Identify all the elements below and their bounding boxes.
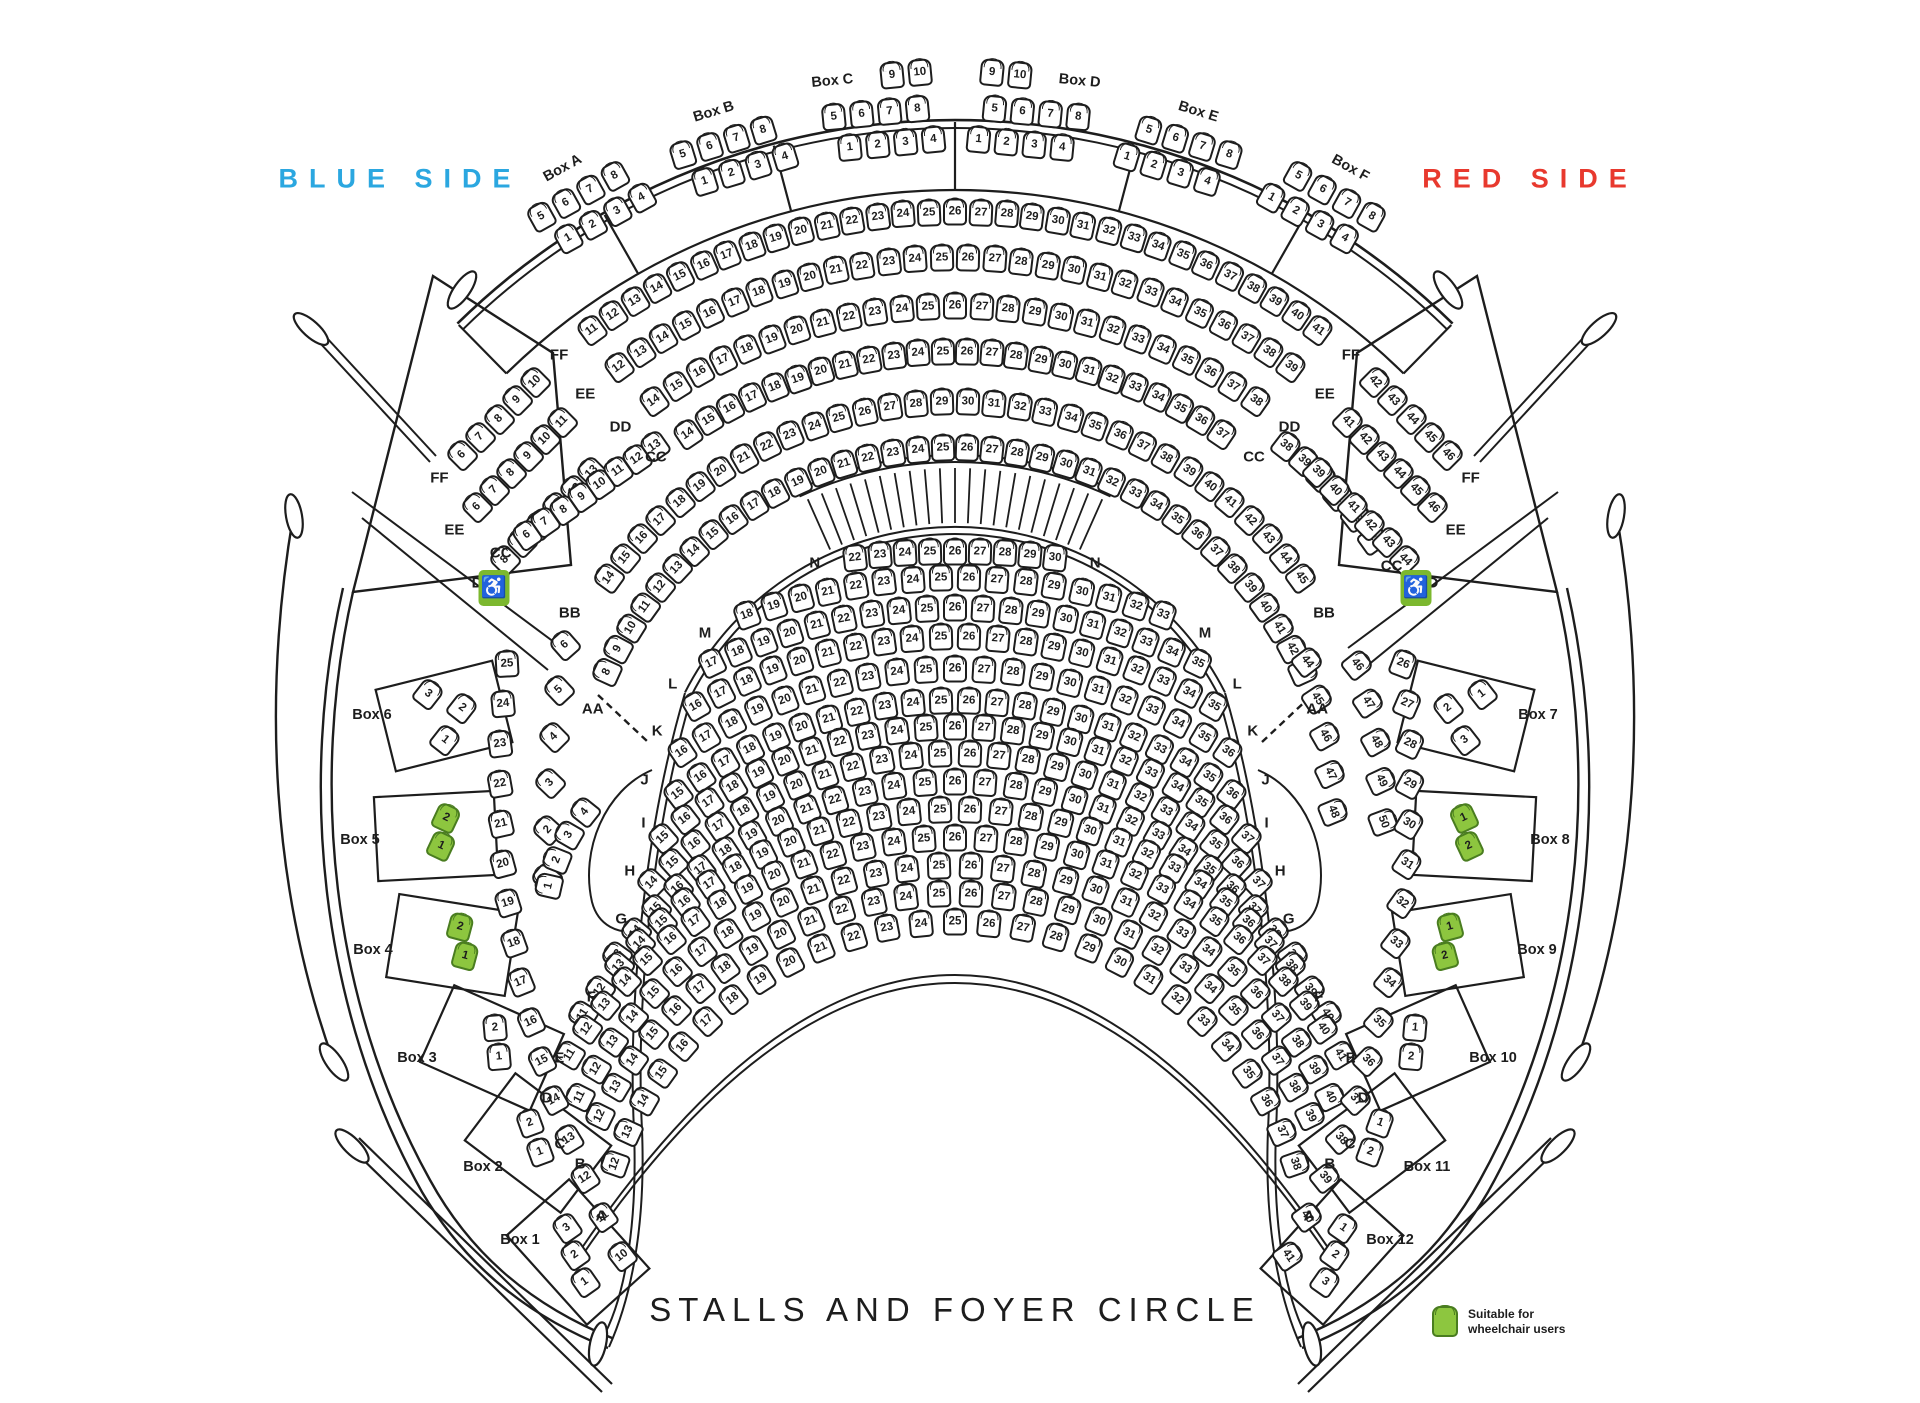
row-label: C	[1345, 1135, 1356, 1152]
seat-N-22[interactable]: 22	[841, 543, 868, 573]
row-label: J	[640, 771, 648, 788]
seat-E-25[interactable]: 25	[927, 796, 952, 824]
row-label: CC	[490, 545, 512, 562]
seat-A-25[interactable]: 25	[943, 909, 967, 936]
seat-Box3-2[interactable]: 2	[482, 1014, 508, 1043]
seat-FF-29[interactable]: 29	[1019, 202, 1046, 232]
seat-N-27[interactable]: 27	[968, 539, 993, 567]
row-label: EE	[444, 521, 464, 538]
door-marker	[1557, 1039, 1595, 1084]
row-label: I	[641, 814, 645, 831]
wall-line	[598, 695, 648, 742]
row-label: EE	[1446, 521, 1466, 538]
seat-BoxD-4[interactable]: 4	[1049, 133, 1075, 162]
box-label: Box C	[811, 71, 854, 91]
row-label: FF	[1461, 469, 1479, 486]
row-label: FF	[1342, 347, 1360, 364]
row-label: C	[554, 1135, 565, 1152]
box-label: Box B	[691, 98, 736, 126]
seat-G-27[interactable]: 27	[986, 742, 1013, 771]
seat-EE-29[interactable]: 29	[1034, 250, 1062, 281]
seat-H-28[interactable]: 28	[999, 716, 1026, 746]
row-label: N	[1090, 554, 1101, 571]
row-label: H	[1275, 862, 1286, 879]
wall-line	[1019, 476, 1030, 530]
seat-I-25[interactable]: 25	[928, 687, 953, 715]
red-side-label: RED SIDE	[1422, 164, 1638, 195]
row-label: J	[1261, 771, 1269, 788]
row-label: BB	[559, 605, 581, 622]
wall-line	[993, 471, 1000, 526]
seat-F-25[interactable]: 25	[912, 769, 938, 798]
seat-F-27[interactable]: 27	[972, 769, 998, 798]
seat-DD-23[interactable]: 23	[861, 297, 889, 327]
seat-D-27[interactable]: 27	[973, 825, 999, 854]
wall-line	[1006, 473, 1015, 527]
wheelchair-icon: ♿	[1401, 570, 1432, 606]
seat-G-25[interactable]: 25	[928, 740, 953, 768]
seat-CC-25[interactable]: 25	[930, 338, 955, 366]
seat-K-22[interactable]: 22	[841, 631, 870, 662]
seat-BoxE-1[interactable]: 1	[1112, 141, 1143, 174]
seat-BB-27[interactable]: 27	[876, 392, 904, 422]
row-label: I	[1264, 814, 1268, 831]
seat-G-24[interactable]: 24	[898, 742, 925, 771]
row-label: D	[542, 1090, 553, 1107]
row-label: FF	[550, 347, 568, 364]
seat-BoxD-6[interactable]: 6	[1009, 97, 1035, 126]
seat-B-26[interactable]: 26	[959, 880, 984, 908]
seat-DD-26[interactable]: 26	[943, 293, 967, 320]
box-box-c[interactable]: Box C91056781234	[795, 54, 957, 180]
seat-slips-24[interactable]: 24	[490, 690, 516, 719]
row-label: Box 2	[463, 1159, 503, 1175]
seat-BoxB-3[interactable]: 3	[743, 149, 774, 182]
seat-AA-28[interactable]: 28	[1003, 438, 1031, 469]
row-label: E	[554, 1049, 564, 1066]
seat-EE-22[interactable]: 22	[848, 250, 876, 281]
seat-BoxB-8[interactable]: 8	[748, 114, 779, 147]
seat-N-26[interactable]: 26	[943, 539, 967, 566]
wall-line	[910, 471, 917, 526]
seat-M-29[interactable]: 29	[1040, 571, 1068, 602]
row-label: CC	[1381, 558, 1403, 575]
seat-EE-26[interactable]: 26	[956, 244, 981, 272]
row-label: Box 3	[397, 1050, 437, 1066]
wall-line	[981, 469, 986, 524]
seat-EE-23[interactable]: 23	[875, 247, 902, 277]
seat-DD-27[interactable]: 27	[969, 293, 994, 321]
wall-line	[968, 468, 970, 523]
row-label: G	[1283, 911, 1295, 928]
row-label: M	[1199, 624, 1212, 641]
seat-M-27[interactable]: 27	[985, 565, 1011, 594]
seat-D-29[interactable]: 29	[1032, 832, 1061, 863]
seat-BoxC-10[interactable]: 10	[907, 58, 933, 87]
seat-I-27[interactable]: 27	[984, 688, 1010, 717]
seat-F-28[interactable]: 28	[1002, 771, 1030, 801]
seat-Box10-2[interactable]: 2	[1398, 1043, 1424, 1072]
seat-Box3-1[interactable]: 1	[486, 1043, 512, 1072]
row-label: Box 6	[352, 707, 392, 723]
row-label: FF	[430, 469, 448, 486]
seat-G-26[interactable]: 26	[957, 740, 982, 768]
seat-AA-26[interactable]: 26	[955, 434, 980, 462]
seat-BoxC-5[interactable]: 5	[821, 102, 847, 131]
row-label: F	[587, 989, 596, 1006]
seat-BoxC-9[interactable]: 9	[879, 61, 905, 90]
seat-H-25[interactable]: 25	[913, 714, 939, 743]
door-marker	[1604, 493, 1627, 539]
seat-C-27[interactable]: 27	[989, 854, 1016, 884]
seat-FF-22[interactable]: 22	[838, 205, 866, 236]
row-label: B	[575, 1156, 586, 1173]
seat-BoxD-9[interactable]: 9	[979, 58, 1005, 87]
row-label: CC	[645, 449, 667, 466]
seat-DD-28[interactable]: 28	[995, 294, 1022, 323]
seat-AA-23[interactable]: 23	[879, 438, 907, 469]
seat-BoxE-8[interactable]: 8	[1214, 138, 1245, 171]
seat-BoxD-8[interactable]: 8	[1065, 102, 1091, 131]
seat-FF-24[interactable]: 24	[890, 200, 916, 229]
wall-line	[850, 483, 866, 536]
seat-BoxC-1[interactable]: 1	[837, 133, 863, 162]
seat-EE-27[interactable]: 27	[982, 245, 1008, 274]
seat-J-27[interactable]: 27	[971, 656, 997, 684]
seat-BoxE-4[interactable]: 4	[1192, 165, 1223, 198]
seat-L-29[interactable]: 29	[1025, 599, 1053, 629]
seat-BoxC-4[interactable]: 4	[920, 125, 946, 154]
seat-L-28[interactable]: 28	[997, 596, 1024, 625]
seat-A-26[interactable]: 26	[976, 909, 1002, 938]
row-label: N	[809, 554, 820, 571]
seat-BoxD-2[interactable]: 2	[993, 128, 1019, 157]
seat-FF-30[interactable]: 30	[1044, 205, 1072, 236]
seat-C-25[interactable]: 25	[927, 852, 952, 880]
seat-BoxD-1[interactable]: 1	[965, 125, 991, 154]
seat-J-28[interactable]: 28	[999, 658, 1026, 688]
seat-BoxC-6[interactable]: 6	[848, 100, 874, 129]
wall-line	[880, 476, 891, 530]
box-box-d[interactable]: Box D91056781234	[955, 54, 1117, 180]
legend-text: Suitable for wheelchair users	[1468, 1307, 1565, 1337]
row-label: K	[1247, 722, 1258, 739]
seat-L-27[interactable]: 27	[970, 595, 995, 623]
row-label: M	[699, 624, 712, 641]
seat-BoxC-2[interactable]: 2	[864, 130, 890, 159]
seat-FF-25[interactable]: 25	[917, 199, 942, 227]
wall-line	[940, 468, 942, 523]
seat-BoxC-3[interactable]: 3	[892, 128, 918, 157]
seat-BoxB-4[interactable]: 4	[770, 141, 801, 174]
seat-AA-25[interactable]: 25	[930, 434, 955, 462]
row-label: Box 12	[1366, 1232, 1414, 1248]
wall-line	[308, 330, 430, 462]
wall-line	[895, 473, 904, 527]
seat-BB-28[interactable]: 28	[903, 389, 929, 418]
seat-EE-25[interactable]: 25	[929, 244, 954, 272]
seat-N-30[interactable]: 30	[1042, 543, 1069, 573]
row-label: Box 9	[1517, 942, 1557, 958]
seat-M-25[interactable]: 25	[929, 564, 954, 592]
seat-FF-28[interactable]: 28	[994, 200, 1020, 229]
seat-K-25[interactable]: 25	[928, 623, 953, 651]
seat-BoxE-6[interactable]: 6	[1160, 122, 1191, 155]
row-label: EE	[575, 385, 595, 402]
wall-line	[1474, 324, 1596, 456]
row-label: EE	[1315, 385, 1335, 402]
seat-I-26[interactable]: 26	[957, 687, 982, 715]
seat-M-23[interactable]: 23	[871, 567, 898, 597]
seat-slips-25[interactable]: 25	[494, 650, 519, 678]
seat-J-29[interactable]: 29	[1027, 661, 1055, 692]
door-marker	[289, 308, 332, 349]
row-label: Box 5	[340, 832, 380, 848]
seat-FF-27[interactable]: 27	[968, 199, 993, 227]
seat-CC-26[interactable]: 26	[955, 338, 980, 366]
seat-AA-24[interactable]: 24	[904, 435, 931, 464]
seat-B-25[interactable]: 25	[926, 880, 951, 908]
seat-BoxC-7[interactable]: 7	[876, 97, 902, 126]
seat-K-26[interactable]: 26	[957, 623, 982, 651]
seat-L-26[interactable]: 26	[943, 595, 967, 622]
seat-D-25[interactable]: 25	[911, 825, 937, 854]
seat-CC-28[interactable]: 28	[1003, 341, 1030, 371]
seat-C-24[interactable]: 24	[894, 854, 921, 884]
seat-BB-29[interactable]: 29	[930, 388, 955, 416]
seat-N-29[interactable]: 29	[1017, 541, 1043, 570]
seat-A-24[interactable]: 24	[908, 909, 934, 938]
legend-wheelchair-seat-icon	[1432, 1306, 1458, 1337]
row-label: H	[624, 862, 635, 879]
seat-K-27[interactable]: 27	[985, 624, 1011, 653]
box-label: Box E	[1176, 98, 1220, 125]
seat-EE-24[interactable]: 24	[902, 245, 928, 274]
wall-line	[1480, 330, 1602, 462]
seat-slips-22[interactable]: 22	[486, 769, 514, 800]
wall-line	[836, 488, 854, 540]
seat-A-23[interactable]: 23	[873, 913, 902, 944]
seat-B-27[interactable]: 27	[990, 882, 1017, 912]
row-label: E	[1346, 1049, 1356, 1066]
wall-line	[1404, 325, 1452, 374]
seat-J-26[interactable]: 26	[943, 656, 967, 683]
seating-chart-canvas: BLUE SIDE RED SIDE STALLS AND FOYER CIRC…	[0, 0, 1920, 1403]
row-label: Box 7	[1518, 707, 1558, 723]
row-label: L	[668, 676, 677, 693]
seat-DD-29[interactable]: 29	[1021, 297, 1049, 327]
seat-K-23[interactable]: 23	[870, 627, 897, 657]
row-label: A	[1304, 1208, 1315, 1225]
legend: Suitable for wheelchair users	[1432, 1306, 1565, 1337]
seat-BoxD-5[interactable]: 5	[981, 94, 1007, 123]
seat-J-24[interactable]: 24	[884, 658, 911, 688]
seat-BoxD-10[interactable]: 10	[1007, 61, 1033, 90]
seat-L-24[interactable]: 24	[886, 596, 913, 625]
seat-D-26[interactable]: 26	[943, 825, 967, 852]
row-label: F	[1314, 989, 1323, 1006]
seat-M-26[interactable]: 26	[957, 564, 982, 592]
seat-B-24[interactable]: 24	[893, 882, 920, 912]
seat-BoxD-7[interactable]: 7	[1037, 100, 1063, 129]
seat-BoxB-2[interactable]: 2	[716, 157, 747, 190]
seat-BB-32[interactable]: 32	[1006, 392, 1034, 422]
row-label: L	[1233, 676, 1242, 693]
seat-EE-28[interactable]: 28	[1008, 247, 1035, 277]
seat-slips-23[interactable]: 23	[487, 729, 514, 759]
seat-BoxC-8[interactable]: 8	[904, 94, 930, 123]
seat-FF-26[interactable]: 26	[943, 199, 967, 226]
seat-K-24[interactable]: 24	[899, 624, 925, 653]
row-label: DD	[610, 418, 632, 435]
wheelchair-icon: ♿	[479, 570, 510, 606]
seat-L-25[interactable]: 25	[914, 595, 939, 623]
seat-CC-24[interactable]: 24	[905, 339, 931, 368]
seat-BoxE-7[interactable]: 7	[1187, 130, 1218, 163]
seat-CC-23[interactable]: 23	[880, 341, 907, 371]
row-label: AA	[1306, 700, 1328, 717]
seat-Box10-1[interactable]: 1	[1402, 1014, 1428, 1043]
seat-J-25[interactable]: 25	[913, 656, 939, 684]
row-label: Box 8	[1530, 832, 1570, 848]
row-label: G	[615, 911, 627, 928]
door-marker	[1577, 308, 1620, 349]
seat-H-27[interactable]: 27	[971, 714, 997, 743]
seat-M-24[interactable]: 24	[900, 565, 926, 594]
wall-line	[314, 324, 436, 456]
box-label: Box D	[1058, 71, 1101, 91]
seat-N-23[interactable]: 23	[867, 541, 893, 570]
seat-C-26[interactable]: 26	[958, 852, 983, 880]
wall-line	[1577, 517, 1634, 1060]
seat-FF-23[interactable]: 23	[864, 202, 891, 232]
seat-E-26[interactable]: 26	[958, 796, 983, 824]
row-label: Box 1	[500, 1232, 540, 1248]
seat-BoxB-7[interactable]: 7	[721, 122, 752, 155]
wall-line	[925, 469, 930, 524]
wall-line	[865, 479, 879, 532]
seat-M-22[interactable]: 22	[842, 571, 870, 602]
seat-BoxB-5[interactable]: 5	[667, 138, 698, 171]
wall-line	[1044, 483, 1060, 536]
seat-E-24[interactable]: 24	[896, 798, 923, 827]
seat-N-24[interactable]: 24	[892, 539, 917, 567]
seat-BoxE-2[interactable]: 2	[1138, 149, 1169, 182]
seat-BB-30[interactable]: 30	[956, 388, 981, 416]
wall-line	[1031, 479, 1045, 532]
seat-D-24[interactable]: 24	[880, 827, 907, 857]
seat-BoxE-3[interactable]: 3	[1165, 157, 1196, 190]
seat-BB-31[interactable]: 31	[981, 389, 1007, 418]
row-label: Box 11	[1404, 1159, 1451, 1175]
seat-BoxD-3[interactable]: 3	[1021, 130, 1047, 159]
seat-DD-25[interactable]: 25	[916, 293, 941, 321]
seat-N-28[interactable]: 28	[992, 539, 1017, 567]
wall-line	[276, 517, 333, 1060]
seat-C-23[interactable]: 23	[861, 858, 890, 889]
wall-line	[577, 983, 1333, 1263]
seat-H-26[interactable]: 26	[943, 714, 967, 741]
page-title: STALLS AND FOYER CIRCLE	[649, 1291, 1261, 1329]
row-label: AA	[582, 700, 604, 717]
seat-BoxE-5[interactable]: 5	[1133, 114, 1164, 147]
seat-E-28[interactable]: 28	[1017, 801, 1045, 832]
row-label: Box 10	[1469, 1050, 1517, 1066]
seat-N-25[interactable]: 25	[917, 539, 942, 567]
row-label: CC	[1243, 449, 1265, 466]
seat-L-30[interactable]: 30	[1051, 603, 1080, 634]
row-label: B	[1324, 1156, 1335, 1173]
seat-BoxB-1[interactable]: 1	[689, 165, 720, 198]
seat-BoxB-6[interactable]: 6	[694, 130, 725, 163]
row-label: Box 4	[353, 942, 393, 958]
seat-E-27[interactable]: 27	[987, 798, 1014, 827]
seat-L-23[interactable]: 23	[858, 599, 886, 629]
row-label: BB	[1313, 605, 1335, 622]
seat-DD-24[interactable]: 24	[888, 294, 915, 323]
seat-K-28[interactable]: 28	[1012, 627, 1039, 657]
wall-line	[1056, 488, 1074, 540]
door-marker	[315, 1039, 353, 1084]
seat-M-28[interactable]: 28	[1012, 567, 1039, 597]
row-label: D	[1358, 1090, 1369, 1107]
seat-D-28[interactable]: 28	[1003, 827, 1030, 857]
wall-line	[459, 325, 507, 374]
row-label: DD	[1279, 418, 1301, 435]
blue-side-label: BLUE SIDE	[278, 164, 521, 195]
seat-CC-27[interactable]: 27	[979, 339, 1005, 368]
row-label: K	[652, 722, 663, 739]
seat-AA-27[interactable]: 27	[979, 435, 1006, 464]
door-marker	[282, 493, 305, 539]
row-label: A	[596, 1208, 607, 1225]
seat-F-26[interactable]: 26	[943, 769, 967, 796]
wall-line	[577, 975, 1333, 1255]
seat-F-24[interactable]: 24	[881, 771, 909, 801]
